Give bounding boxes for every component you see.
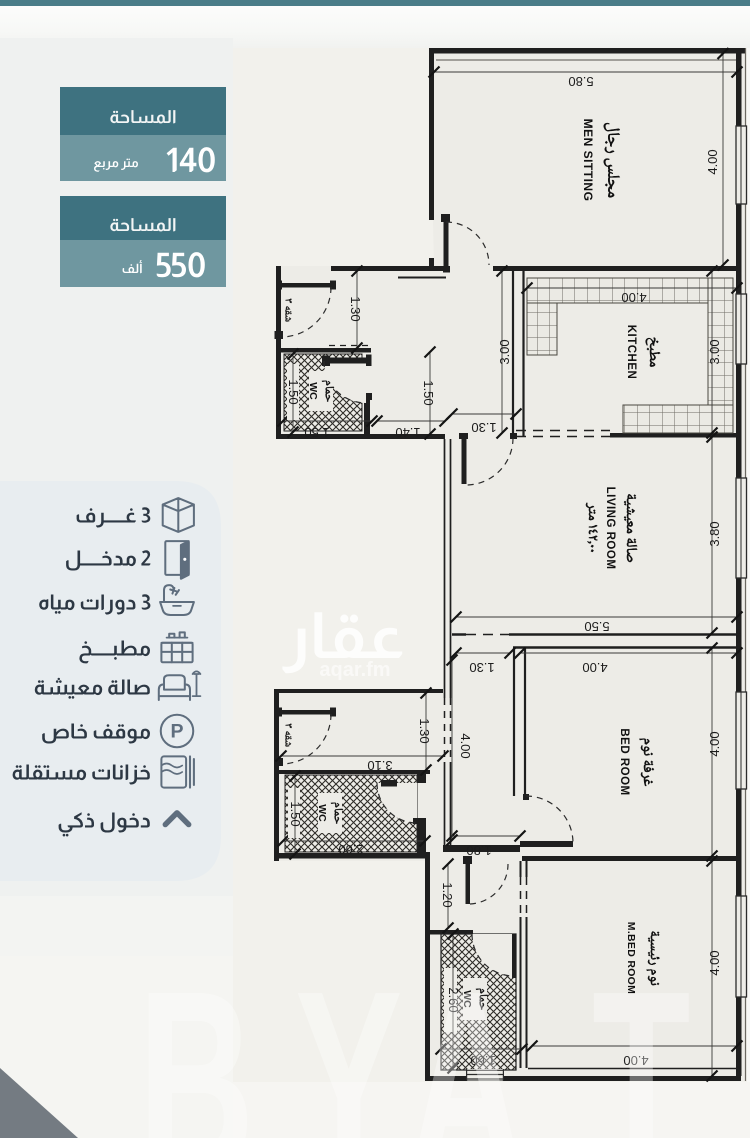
svg-text:1.50: 1.50 [421, 380, 436, 405]
svg-text:BED ROOM: BED ROOM [618, 728, 630, 795]
svg-text:1.80: 1.80 [466, 843, 491, 858]
svg-text:WC: WC [307, 382, 319, 400]
svg-text:1.30: 1.30 [348, 296, 363, 321]
svg-text:A: A [408, 936, 524, 1138]
svg-text:3.80: 3.80 [707, 521, 722, 546]
svg-text:1.30: 1.30 [469, 660, 494, 675]
svg-text:4.00: 4.00 [705, 149, 720, 174]
svg-text:3.00: 3.00 [707, 339, 722, 364]
svg-text:aqar.fm: aqar.fm [319, 659, 390, 681]
svg-text:1.50: 1.50 [286, 379, 301, 404]
svg-text:1.20: 1.20 [440, 882, 455, 907]
svg-text:4.00: 4.00 [621, 290, 646, 305]
svg-text:P: P [170, 721, 183, 743]
svg-text:4.00: 4.00 [458, 733, 473, 758]
svg-text:4.00: 4.00 [707, 731, 722, 756]
svg-text:4.00: 4.00 [582, 660, 607, 675]
svg-text:5.50: 5.50 [584, 619, 609, 634]
svg-text:1.30: 1.30 [471, 420, 496, 435]
svg-text:T: T [592, 936, 690, 1138]
svg-text:1.40: 1.40 [395, 425, 420, 440]
svg-text:3.10: 3.10 [367, 758, 392, 773]
svg-text:MEN SITTING: MEN SITTING [581, 119, 595, 202]
svg-text:1.30: 1.30 [417, 718, 432, 743]
svg-text:Y: Y [295, 936, 403, 1138]
svg-text:1.50: 1.50 [304, 425, 329, 440]
svg-text:3.00: 3.00 [497, 339, 512, 364]
svg-text:B: B [138, 936, 254, 1138]
svg-text:4.00: 4.00 [707, 950, 722, 975]
svg-text:WC: WC [316, 804, 328, 822]
svg-text:5.80: 5.80 [568, 74, 593, 89]
svg-text:1.50: 1.50 [288, 801, 303, 826]
svg-text:KITCHEN: KITCHEN [625, 325, 637, 380]
svg-text:2.60: 2.60 [338, 842, 363, 857]
svg-text:LIVING ROOM: LIVING ROOM [604, 487, 616, 570]
